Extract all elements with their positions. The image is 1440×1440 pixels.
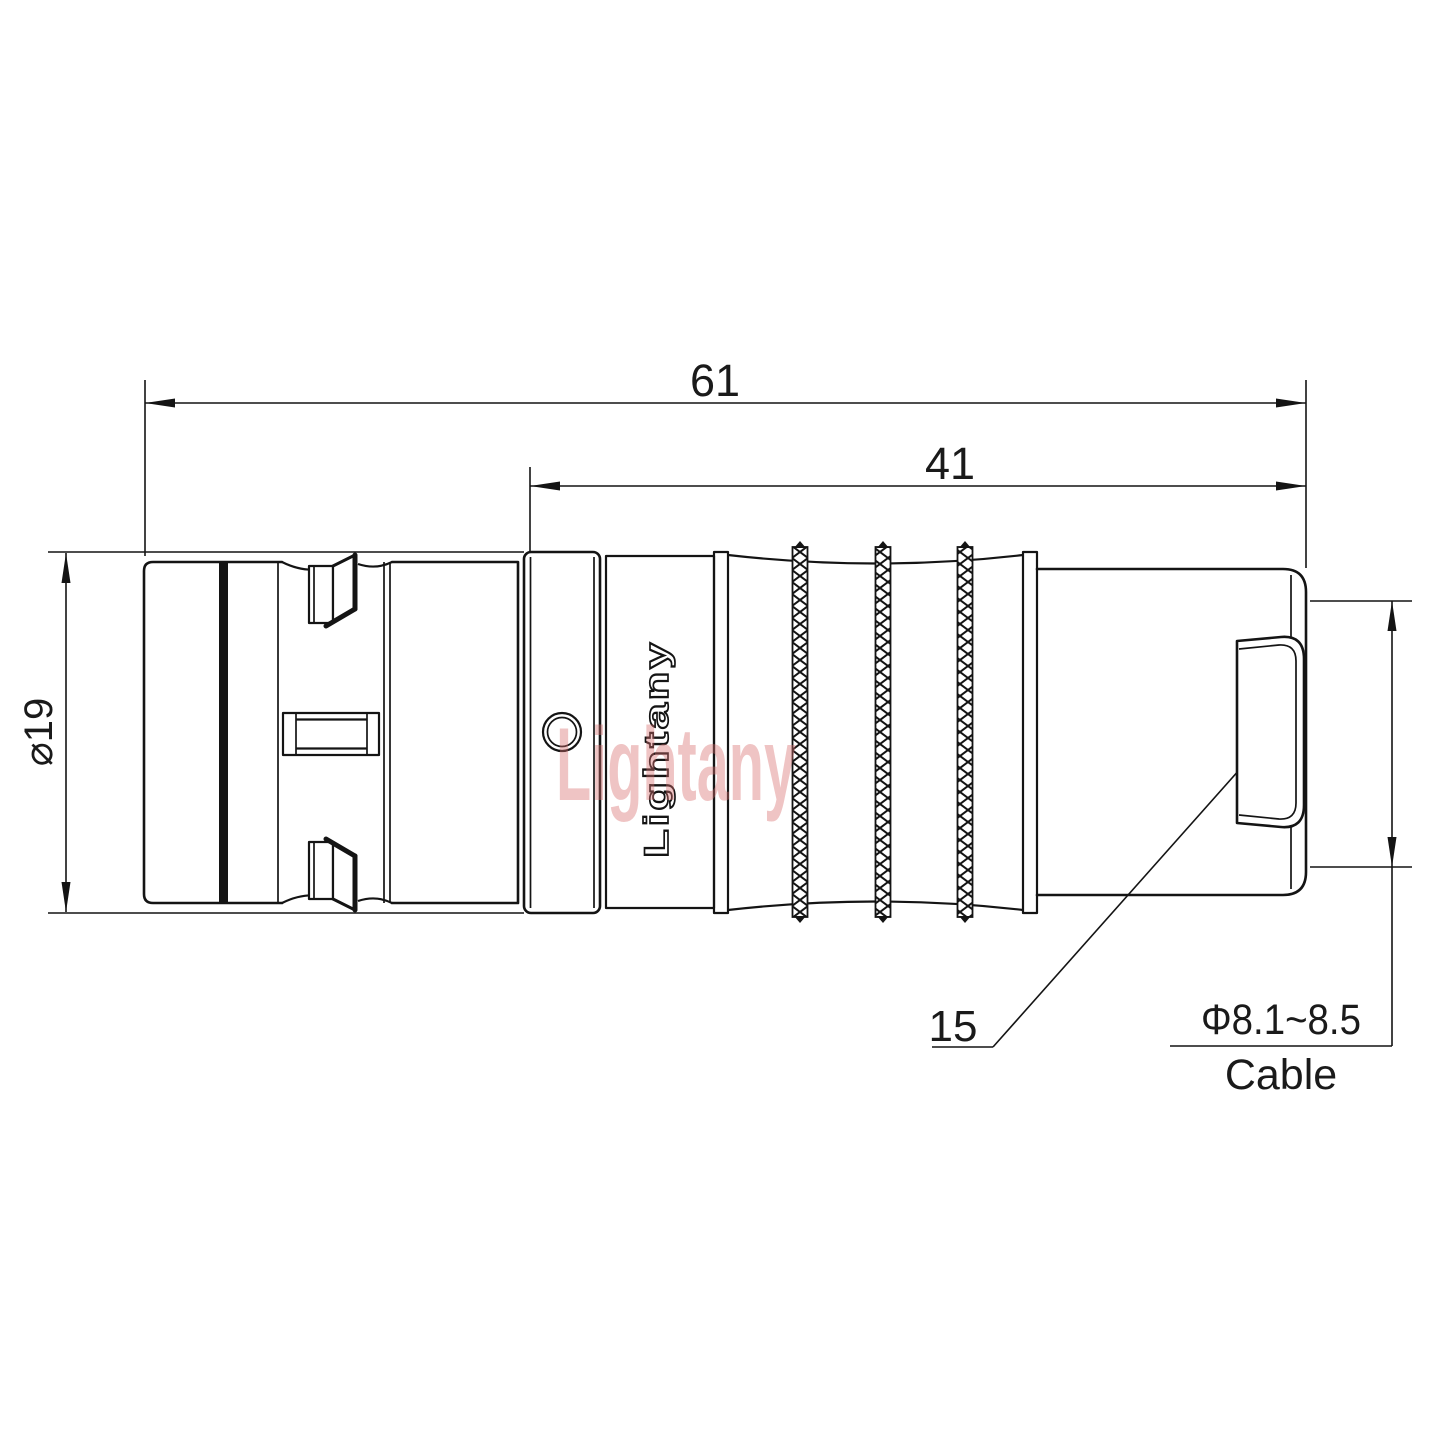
cable-diameter-label: Φ8.1~8.5 [1201,996,1361,1044]
latch-plate [309,842,333,899]
sleeve-outline-left [144,562,282,903]
arrowhead-down-icon [1388,837,1397,867]
dim-rear-length-label: 41 [925,438,975,489]
drawing-canvas: Lightany [0,0,1440,1440]
arrowhead-down-icon [62,882,71,912]
arrowhead-right-icon [1276,482,1306,491]
item-callout-label: 15 [929,1002,978,1051]
sleeve-outline-right [392,562,518,903]
arrowhead-right-icon [1276,399,1306,408]
knurl-collar-right [1023,552,1037,913]
locking-latch-bottom [309,839,355,910]
arrowhead-up-icon [1388,601,1397,631]
cable-word-label: Cable [1225,1051,1337,1099]
arrowhead-up-icon [62,553,71,583]
release-button [283,713,379,755]
connector-drawing: Lightany [0,0,1440,1440]
knurl-band-2 [876,541,891,923]
locking-latch-top [309,555,355,626]
sleeve-notch-top-right [358,562,392,567]
watermark-text: Lightany [556,707,796,823]
release-sleeve [144,555,518,910]
arrowhead-left-icon [530,482,560,491]
cable-bush-outer [1237,637,1304,827]
sleeve-notch-bottom-right [358,898,392,903]
arrowhead-left-icon [145,399,175,408]
sleeve-black-band [219,562,228,903]
dim-overall-length-label: 61 [690,355,740,406]
latch-plate [309,566,333,623]
knurl-band-3 [958,541,973,923]
dim-diameter-label: ⌀19 [17,698,61,767]
